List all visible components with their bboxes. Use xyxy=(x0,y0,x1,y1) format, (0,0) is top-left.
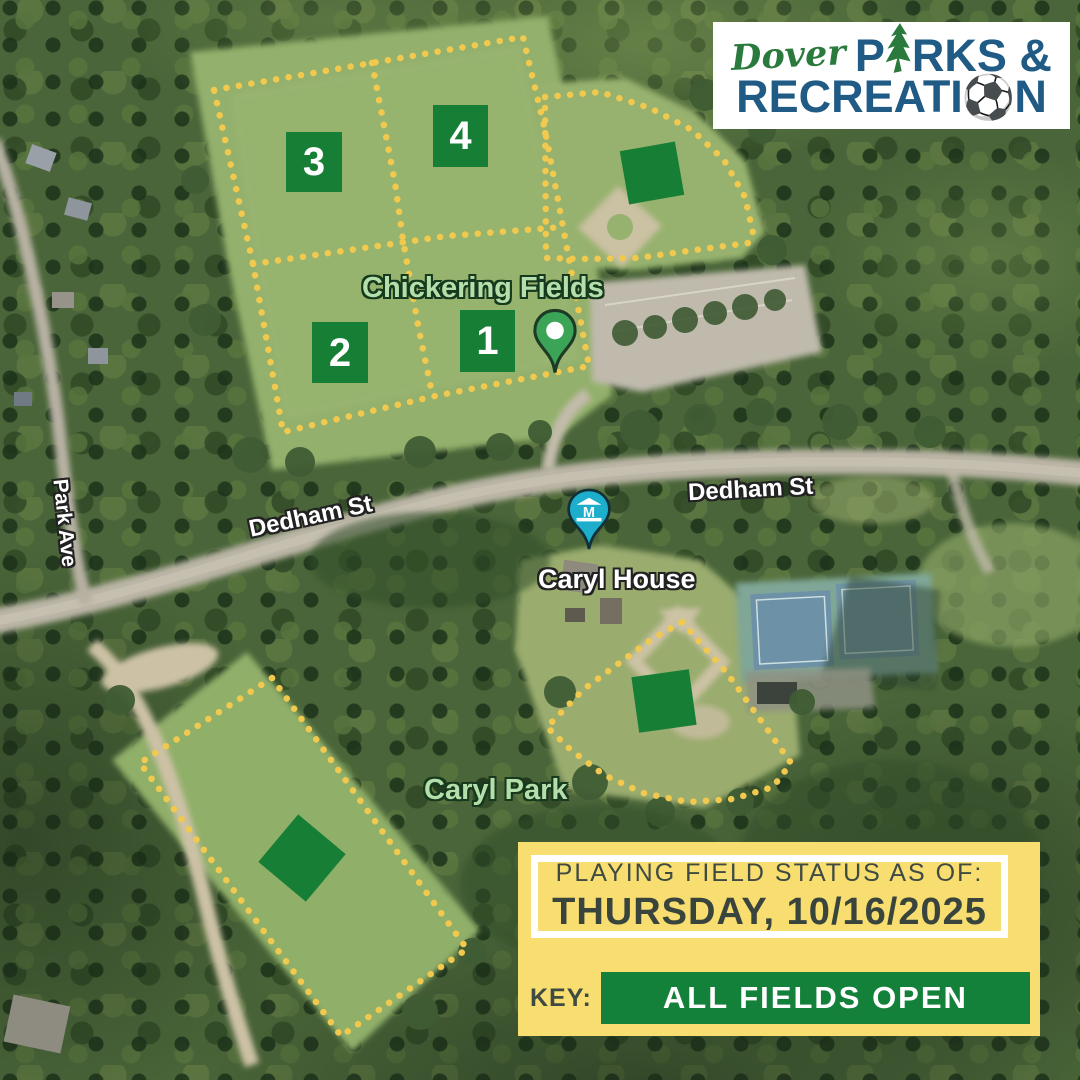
field-status-marker-1: 1 xyxy=(460,310,515,372)
dover-parks-recreation-logo: Dover P RKS & RECREATI ⚽ N xyxy=(713,22,1070,129)
field-status-marker-north-ballfield xyxy=(620,142,685,205)
field-status-marker-3: 3 xyxy=(286,132,342,192)
svg-text:M: M xyxy=(583,505,595,521)
field-number: 1 xyxy=(476,321,498,361)
soccer-ball-icon: ⚽ xyxy=(962,77,1016,120)
flyer: 3 4 2 1 M Chickering Fields Caryl Park C… xyxy=(0,0,1080,1080)
poi-label-caryl-house: Caryl House xyxy=(538,564,696,595)
logo-city-name: Dover xyxy=(730,35,846,76)
field-number: 4 xyxy=(449,116,471,156)
field-number: 2 xyxy=(329,333,351,373)
status-key-label: KEY: xyxy=(530,984,592,1013)
pine-tree-icon xyxy=(883,20,915,76)
park-label-chickering-fields: Chickering Fields xyxy=(362,272,604,305)
status-panel: PLAYING FIELD STATUS AS OF: THURSDAY, 10… xyxy=(518,842,1040,1036)
status-panel-box: PLAYING FIELD STATUS AS OF: THURSDAY, 10… xyxy=(531,855,1008,938)
logo-recreation-text-end: N xyxy=(1014,74,1047,119)
soccer-fields-divider-vertical xyxy=(372,63,432,393)
map-pin-icon xyxy=(532,308,578,383)
park-label-caryl-park: Caryl Park xyxy=(424,774,568,807)
field-status-marker-central-ballfield xyxy=(631,669,696,733)
museum-pin-icon: M xyxy=(565,488,613,559)
logo-recreation-text-start: RECREATI xyxy=(736,74,963,119)
status-key-open-badge: ALL FIELDS OPEN xyxy=(601,972,1030,1024)
status-panel-title: PLAYING FIELD STATUS AS OF: xyxy=(556,859,984,888)
status-panel-date: THURSDAY, 10/16/2025 xyxy=(552,891,987,934)
status-key-row: KEY: ALL FIELDS OPEN xyxy=(530,972,1030,1024)
field-status-marker-4: 4 xyxy=(433,105,488,167)
field-status-marker-2: 2 xyxy=(312,322,368,383)
field-number: 3 xyxy=(303,142,325,182)
soccer-fields-divider-horizontal xyxy=(253,227,563,264)
